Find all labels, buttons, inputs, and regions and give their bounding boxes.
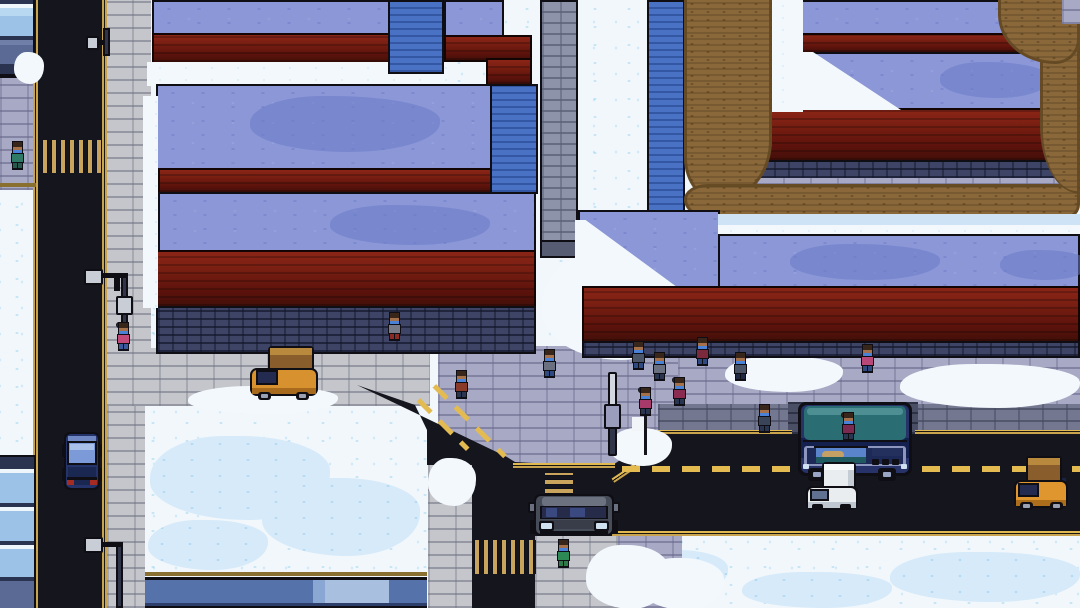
- pedestrian[interactable]: [454, 370, 469, 399]
- pedestrian[interactable]: [10, 141, 25, 170]
- pedestrian-part: [703, 359, 707, 364]
- pedestrian-part: [680, 399, 684, 404]
- pedestrian-part: [654, 365, 665, 373]
- building-bottomleft-part: [0, 473, 34, 503]
- building-base: [758, 160, 1080, 180]
- car-orange-part: [270, 348, 312, 355]
- pedestrian[interactable]: [116, 322, 131, 351]
- car-orange[interactable]: [250, 346, 318, 400]
- building-bottomleft-part: [0, 549, 34, 577]
- car-blue-part: [70, 444, 94, 450]
- pedestrian-part: [697, 350, 708, 358]
- pedestrian-part: [550, 371, 554, 376]
- car-orange-part: [258, 372, 276, 383]
- flag-marker-part: [632, 417, 644, 431]
- pedestrian[interactable]: [652, 352, 667, 381]
- building-bottom: [145, 577, 427, 608]
- road-line: [513, 463, 615, 468]
- street-lamp-part: [118, 544, 121, 606]
- pedestrian[interactable]: [556, 539, 571, 568]
- pedestrian-part: [863, 366, 867, 371]
- building-roof: [444, 0, 504, 37]
- pedestrian[interactable]: [757, 404, 772, 433]
- building-strip-gold: [145, 572, 427, 576]
- bus-part: [901, 464, 907, 469]
- sidewalk-corner: [1062, 0, 1080, 24]
- crosswalk: [474, 540, 536, 574]
- car-orange-2[interactable]: [1014, 456, 1068, 510]
- pedestrian[interactable]: [733, 352, 748, 381]
- pedestrian-part: [544, 362, 555, 370]
- pedestrian-part: [634, 363, 638, 368]
- pedestrian-part: [844, 434, 848, 439]
- pedestrian-part: [760, 426, 764, 431]
- dirt-path: [684, 184, 1080, 218]
- pedestrian-part: [646, 409, 650, 414]
- bus-part: [872, 448, 902, 456]
- car-orange-part: [261, 394, 268, 398]
- sidewalk-pad: [0, 72, 36, 190]
- wall-brick-end: [540, 240, 578, 258]
- pedestrian-part: [675, 399, 679, 404]
- pedestrian-part: [736, 374, 740, 379]
- car-suv-part: [596, 523, 607, 529]
- pedestrian-part: [765, 426, 769, 431]
- pedestrian[interactable]: [542, 349, 557, 378]
- building-base: [156, 306, 536, 354]
- road-line: [612, 531, 1080, 536]
- pedestrian-part: [698, 359, 702, 364]
- building-bottom-part: [145, 603, 427, 606]
- building-roof-side: [647, 0, 685, 228]
- car-suv-part: [541, 523, 552, 529]
- pedestrian-part: [395, 334, 399, 339]
- snow-patch: [640, 558, 724, 608]
- sign-pole[interactable]: [604, 372, 622, 456]
- pedestrian-part: [456, 383, 467, 391]
- pedestrian-part: [741, 374, 745, 379]
- car-orange-2-part: [1053, 504, 1060, 508]
- street-lamp-part: [88, 38, 97, 48]
- snow-cloud: [262, 478, 420, 556]
- sign-pole-part: [606, 406, 619, 427]
- building-bottomleft-part: [0, 581, 34, 608]
- pedestrian-part: [862, 357, 873, 365]
- pedestrian-part: [390, 334, 394, 339]
- pedestrian-part: [118, 335, 129, 343]
- pedestrian[interactable]: [387, 312, 402, 341]
- car-white-part: [812, 491, 827, 499]
- pedestrian[interactable]: [841, 412, 856, 441]
- dirt-path: [684, 0, 772, 202]
- roof-snow-edge: [770, 0, 803, 112]
- car-orange-2-part: [1020, 485, 1037, 495]
- roof-cloud-shadow: [940, 62, 1050, 98]
- pedestrian-part: [735, 365, 746, 373]
- pedestrian-part: [641, 409, 645, 414]
- street-lamp-part: [86, 271, 101, 283]
- car-white-part: [824, 464, 854, 470]
- pedestrian-part: [389, 325, 400, 333]
- pedestrian-part: [545, 371, 549, 376]
- pedestrian[interactable]: [860, 344, 875, 373]
- snow-patch: [428, 458, 476, 506]
- car-blue[interactable]: [62, 432, 102, 492]
- pedestrian-part: [558, 552, 569, 560]
- roof-cloud-strip: [718, 214, 1080, 225]
- car-blue-part: [68, 467, 96, 477]
- pedestrian-part: [849, 434, 853, 439]
- pedestrian[interactable]: [672, 377, 687, 406]
- bus-part: [883, 472, 891, 477]
- pedestrian[interactable]: [695, 337, 710, 366]
- building-wall: [486, 58, 532, 86]
- building-wall: [156, 250, 536, 308]
- building-topleft-part: [0, 40, 33, 45]
- pedestrian-part: [868, 366, 872, 371]
- road-line: [915, 430, 1080, 434]
- pedestrian-part: [633, 354, 644, 362]
- wall-brick: [540, 0, 578, 246]
- pedestrian-part: [674, 390, 685, 398]
- snow-cloud: [890, 552, 1080, 602]
- car-white[interactable]: [806, 462, 858, 510]
- pedestrian-part: [660, 374, 664, 379]
- pedestrian-part: [12, 154, 23, 162]
- pedestrian-part: [655, 374, 659, 379]
- car-suv[interactable]: [528, 494, 620, 538]
- sign-pole-part: [610, 429, 615, 454]
- street-lamp-part: [118, 298, 131, 313]
- flag-marker-part: [644, 415, 647, 455]
- bus-part: [892, 459, 899, 465]
- pedestrian-part: [124, 344, 128, 349]
- car-orange-2-part: [1023, 504, 1030, 508]
- pedestrian-part: [457, 392, 461, 397]
- gold-line: [0, 183, 36, 187]
- pedestrian-part: [18, 163, 22, 168]
- pedestrian-part: [843, 425, 854, 433]
- car-suv-part: [546, 508, 557, 517]
- snow-patch: [900, 364, 1080, 408]
- building-roof-side: [490, 84, 538, 194]
- street-lamp[interactable]: [86, 28, 112, 56]
- roof-cloud-shadow: [330, 205, 490, 245]
- snow-cloud: [742, 572, 892, 608]
- crosswalk: [545, 473, 573, 494]
- building-roof-side: [388, 0, 444, 74]
- pedestrian-part: [13, 163, 17, 168]
- car-white-part: [812, 504, 823, 510]
- street-lamp[interactable]: [84, 537, 126, 608]
- bus-part: [882, 459, 889, 465]
- car-suv-part: [540, 531, 608, 535]
- pedestrian-part: [564, 561, 568, 566]
- game-viewport[interactable]: [0, 0, 1080, 608]
- car-orange-2-part: [1028, 458, 1060, 465]
- pedestrian-part: [462, 392, 466, 397]
- pedestrian[interactable]: [631, 341, 646, 370]
- building-wall: [158, 168, 534, 194]
- sign-pole-part: [610, 374, 615, 406]
- street-lamp-part: [86, 539, 101, 551]
- flag-marker[interactable]: [632, 415, 649, 455]
- car-white-part: [840, 504, 851, 510]
- roof-cloud-shadow: [1000, 250, 1080, 280]
- building-topleft-part: [0, 8, 33, 16]
- pedestrian-part: [640, 400, 651, 408]
- bus-part: [872, 459, 879, 465]
- car-blue-part: [74, 480, 90, 485]
- crosswalk: [42, 140, 102, 173]
- pedestrian-part: [759, 417, 770, 425]
- building-wall: [760, 108, 1080, 162]
- car-suv-part: [570, 508, 585, 517]
- street-lamp-part: [105, 30, 108, 54]
- pedestrian-part: [559, 561, 563, 566]
- street-lamp-part: [101, 542, 121, 547]
- building-bottomleft: [0, 455, 36, 608]
- car-suv-part: [542, 497, 606, 506]
- pedestrian-part: [119, 344, 123, 349]
- pedestrian[interactable]: [638, 387, 653, 416]
- snow-drift: [14, 52, 44, 84]
- building-bottomleft-part: [0, 511, 34, 541]
- pedestrian-part: [639, 363, 643, 368]
- roof-cloud-shadow: [250, 96, 440, 152]
- building-wall: [582, 286, 1080, 343]
- snow-cloud: [148, 520, 268, 570]
- roof-cloud-shadow: [790, 244, 940, 280]
- street-lamp-part: [114, 275, 120, 291]
- car-orange-part: [299, 394, 306, 398]
- roof-snow-edge: [143, 96, 158, 308]
